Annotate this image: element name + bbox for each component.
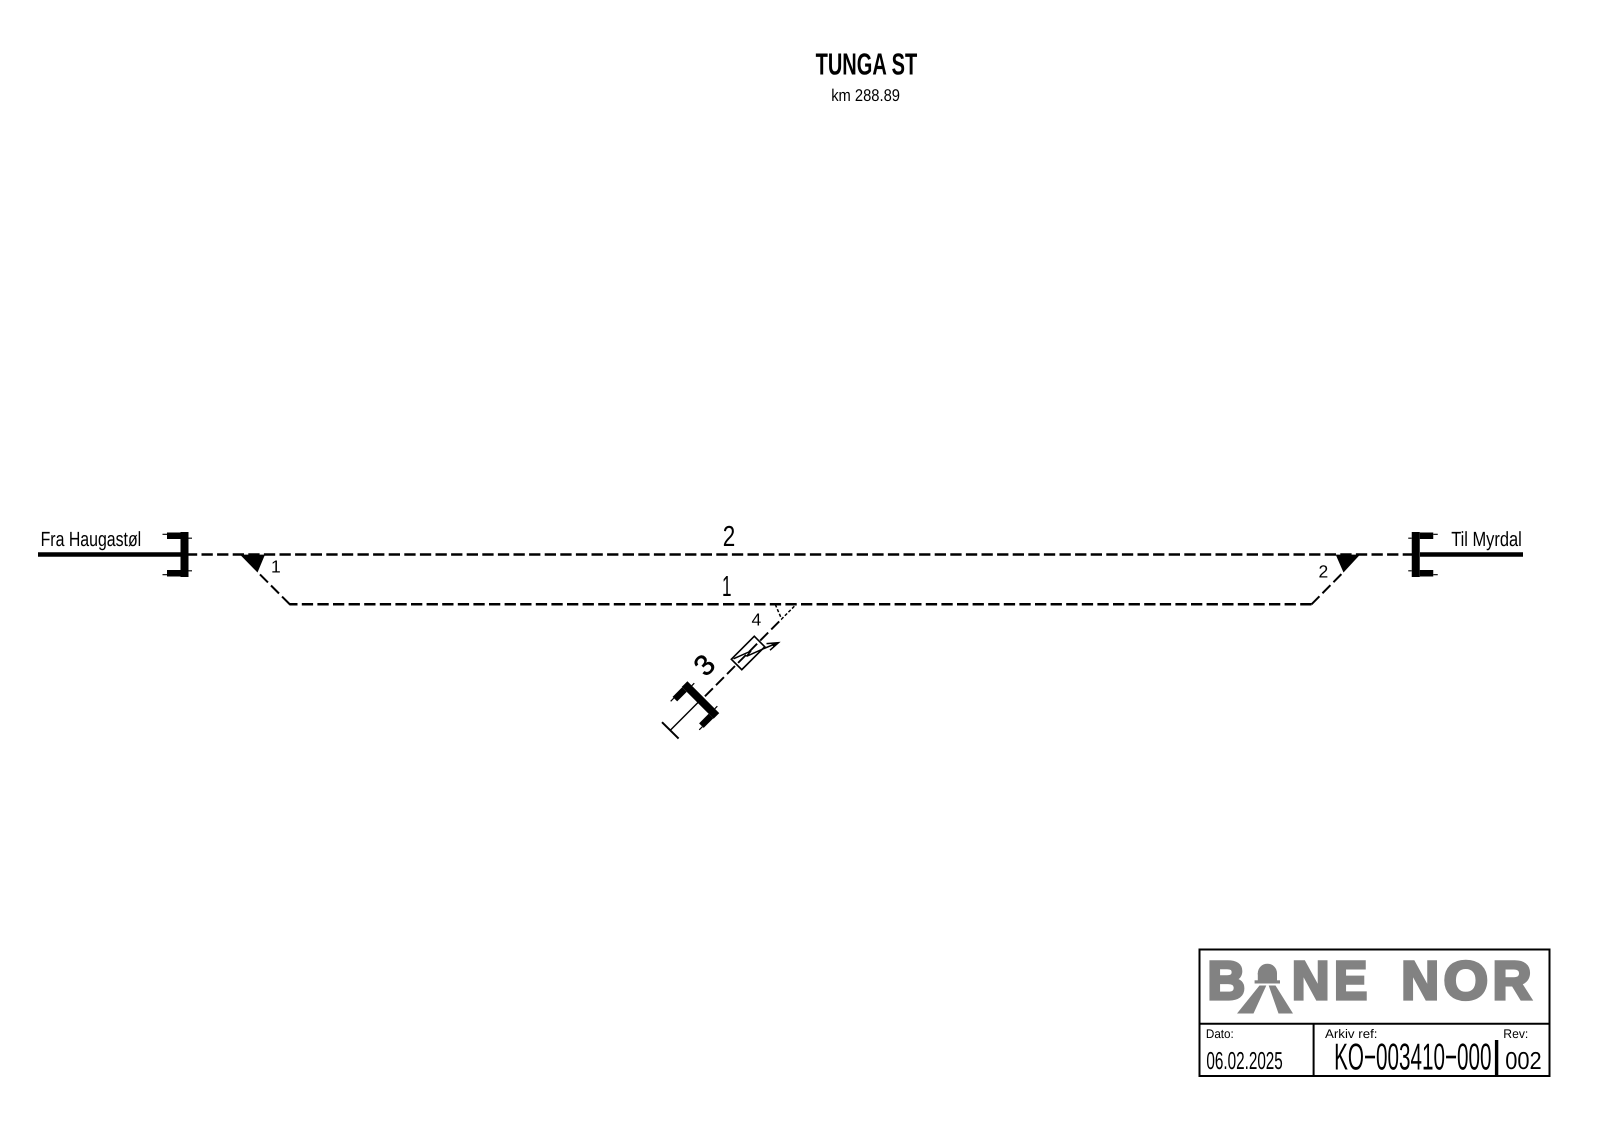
svg-text:1: 1 bbox=[722, 571, 732, 603]
svg-text:KO−003410−000: KO−003410−000 bbox=[1334, 1036, 1491, 1078]
svg-text:Til Myrdal: Til Myrdal bbox=[1451, 528, 1522, 551]
svg-text:km 288.89: km 288.89 bbox=[831, 86, 900, 105]
svg-text:2: 2 bbox=[723, 521, 736, 553]
svg-text:O: O bbox=[1444, 951, 1488, 1011]
svg-text:TUNGA ST: TUNGA ST bbox=[816, 48, 918, 82]
svg-text:Rev:: Rev: bbox=[1503, 1027, 1528, 1041]
svg-text:R: R bbox=[1493, 951, 1532, 1011]
svg-text:06.02.2025: 06.02.2025 bbox=[1206, 1048, 1282, 1075]
svg-text:N: N bbox=[1292, 951, 1330, 1011]
svg-text:002: 002 bbox=[1505, 1048, 1542, 1075]
svg-text:2: 2 bbox=[1319, 562, 1329, 582]
svg-text:3: 3 bbox=[688, 649, 722, 683]
svg-text:4: 4 bbox=[752, 610, 762, 630]
svg-text:B: B bbox=[1208, 951, 1246, 1011]
svg-text:E: E bbox=[1334, 951, 1367, 1011]
svg-text:Dato:: Dato: bbox=[1206, 1027, 1234, 1041]
svg-text:N: N bbox=[1401, 951, 1439, 1011]
svg-text:Fra Haugastøl: Fra Haugastøl bbox=[41, 528, 142, 551]
svg-text:1: 1 bbox=[271, 557, 281, 577]
